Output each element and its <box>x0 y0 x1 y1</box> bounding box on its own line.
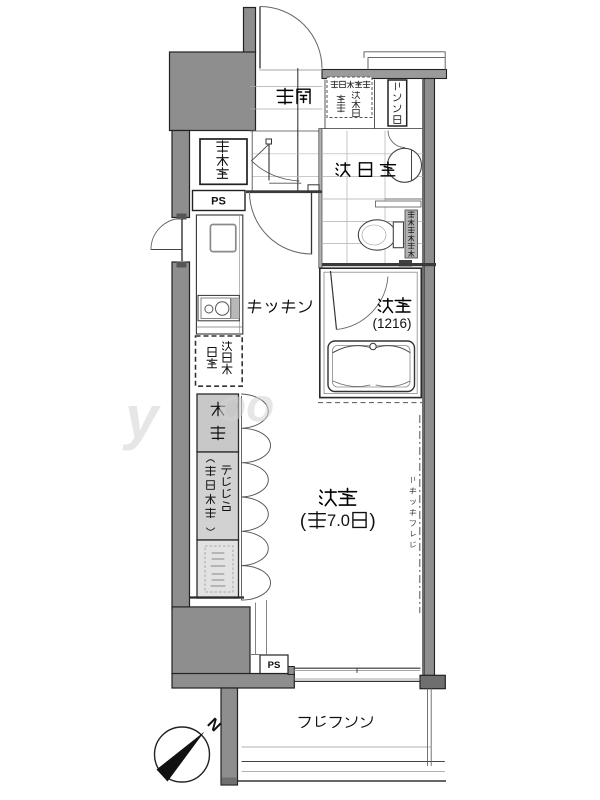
svg-text:(1216): (1216) <box>372 316 411 331</box>
svg-text:PS: PS <box>211 196 226 208</box>
svg-text:oo: oo <box>218 379 274 431</box>
svg-text:): ) <box>369 511 375 532</box>
svg-text:y: y <box>122 384 161 451</box>
svg-text:(: ( <box>300 511 307 532</box>
svg-text:7.0: 7.0 <box>327 512 350 530</box>
svg-text:PS: PS <box>268 660 281 671</box>
